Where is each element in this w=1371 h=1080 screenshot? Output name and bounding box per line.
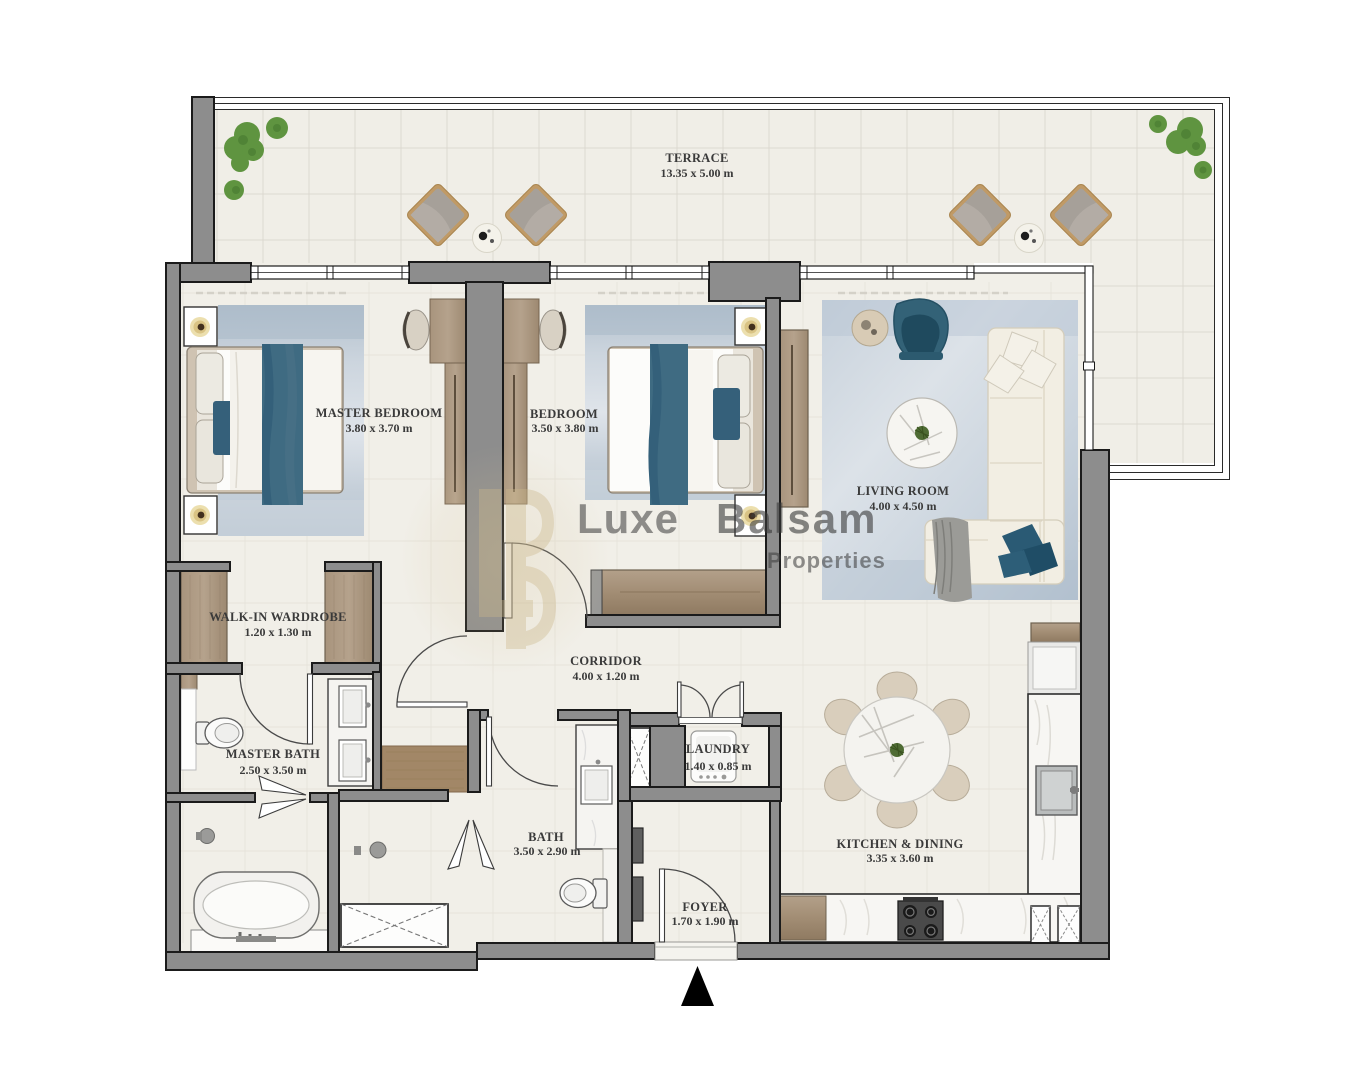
svg-text:FOYER: FOYER [682,900,728,914]
svg-text:KITCHEN & DINING: KITCHEN & DINING [836,837,963,851]
svg-text:2.50 x 3.50 m: 2.50 x 3.50 m [240,763,307,777]
svg-text:1.20 x 1.30 m: 1.20 x 1.30 m [245,625,312,639]
svg-text:3.80 x 3.70 m: 3.80 x 3.70 m [346,421,413,435]
svg-text:3.50 x 2.90 m: 3.50 x 2.90 m [514,844,581,858]
svg-text:3.35 x 3.60 m: 3.35 x 3.60 m [867,851,934,865]
svg-text:MASTER BATH: MASTER BATH [226,747,320,761]
svg-text:1.40 x 0.85 m: 1.40 x 0.85 m [685,759,752,773]
svg-text:CORRIDOR: CORRIDOR [570,654,643,668]
svg-text:WALK-IN WARDROBE: WALK-IN WARDROBE [209,610,347,624]
svg-text:MASTER BEDROOM: MASTER BEDROOM [316,406,443,420]
svg-text:Luxe: Luxe [577,495,679,542]
svg-text:4.00 x 1.20 m: 4.00 x 1.20 m [573,669,640,683]
svg-text:Balsam: Balsam [716,495,877,542]
svg-text:BEDROOM: BEDROOM [530,407,598,421]
svg-text:3.50 x 3.80 m: 3.50 x 3.80 m [532,421,599,435]
svg-text:BATH: BATH [528,830,564,844]
svg-text:LAUNDRY: LAUNDRY [686,742,750,756]
svg-text:TERRACE: TERRACE [665,151,728,165]
svg-text:Properties: Properties [767,548,886,573]
svg-text:4.00 x 4.50 m: 4.00 x 4.50 m [870,499,937,513]
svg-text:1.70 x 1.90 m: 1.70 x 1.90 m [672,914,739,928]
svg-text:13.35 x 5.00 m: 13.35 x 5.00 m [661,166,734,180]
